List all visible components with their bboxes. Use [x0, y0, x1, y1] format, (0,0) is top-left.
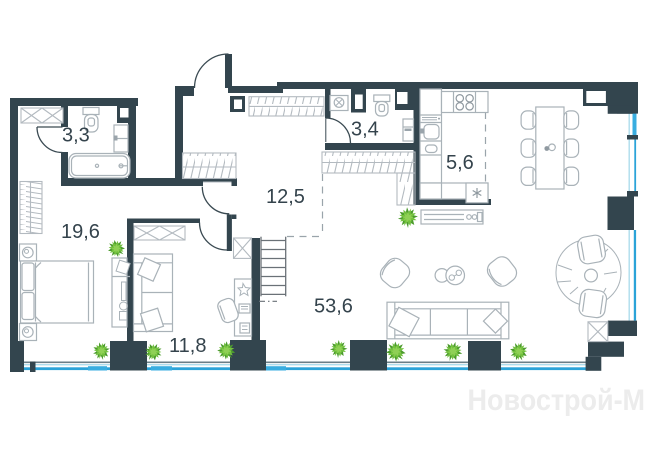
svg-text:53,6: 53,6: [314, 296, 353, 318]
svg-text:19,6: 19,6: [61, 221, 100, 243]
svg-text:12,5: 12,5: [266, 186, 305, 208]
svg-text:3,4: 3,4: [351, 119, 379, 141]
svg-text:Новострой-М: Новострой-М: [468, 384, 646, 418]
svg-text:5,6: 5,6: [446, 152, 474, 174]
svg-text:11,8: 11,8: [169, 335, 206, 357]
svg-text:3,3: 3,3: [62, 125, 90, 147]
